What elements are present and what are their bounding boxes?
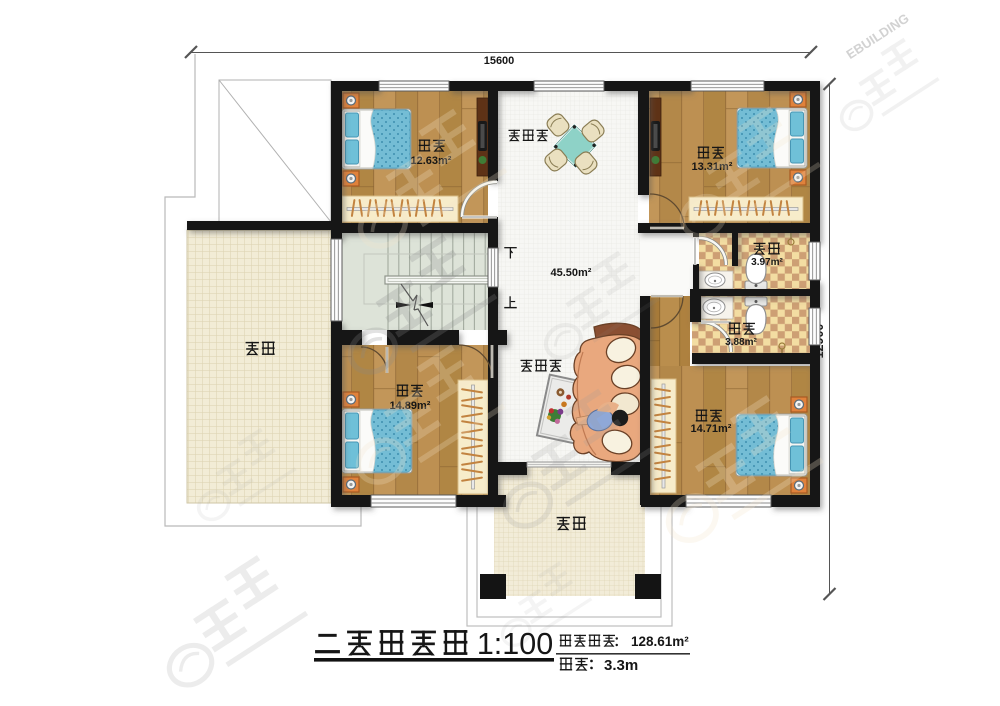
svg-text:：: ： bbox=[588, 656, 602, 672]
svg-text:：: ： bbox=[613, 634, 626, 649]
svg-text:45.50m²: 45.50m² bbox=[551, 267, 592, 279]
svg-text:128.61m²: 128.61m² bbox=[631, 634, 689, 649]
svg-text:15600: 15600 bbox=[484, 55, 515, 67]
svg-text:3.97m²: 3.97m² bbox=[751, 257, 783, 268]
svg-text:3.3m: 3.3m bbox=[604, 657, 638, 674]
svg-text:14.71m²: 14.71m² bbox=[691, 423, 732, 435]
svg-text:1:100: 1:100 bbox=[477, 627, 553, 661]
svg-text:3.88m²: 3.88m² bbox=[725, 337, 757, 348]
